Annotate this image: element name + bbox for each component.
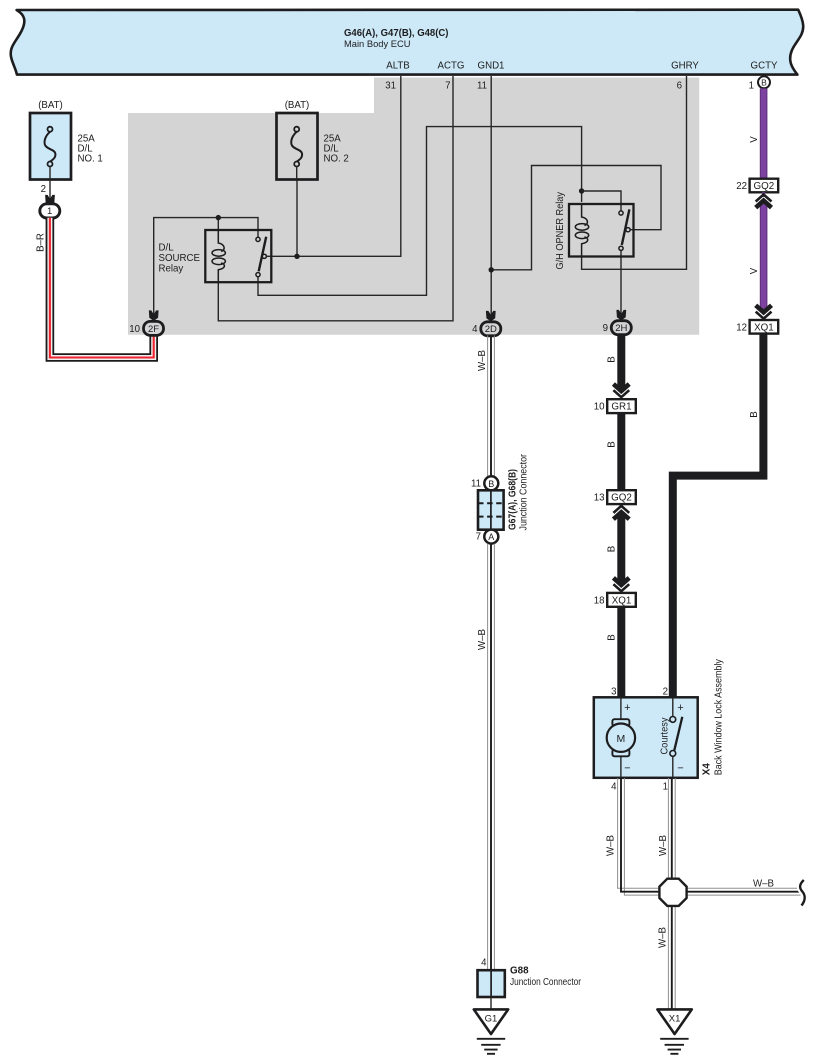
svg-text:B: B: [607, 441, 618, 447]
svg-text:D/L: D/L: [159, 243, 175, 254]
svg-text:X4: X4: [702, 763, 713, 776]
svg-text:GND1: GND1: [478, 61, 505, 72]
svg-text:G46(A), G47(B), G48(C): G46(A), G47(B), G48(C): [344, 28, 449, 39]
svg-text:22: 22: [736, 181, 747, 192]
svg-text:Junction Connector: Junction Connector: [510, 977, 582, 988]
svg-text:B: B: [749, 411, 760, 417]
svg-text:W–B: W–B: [753, 879, 774, 890]
svg-text:M: M: [617, 733, 626, 745]
svg-text:1: 1: [749, 81, 754, 92]
svg-text:+: +: [624, 702, 630, 714]
svg-text:2D: 2D: [485, 324, 497, 335]
svg-text:W–B: W–B: [606, 835, 617, 856]
svg-text:NO. 1: NO. 1: [78, 154, 103, 165]
svg-text:Courtesy: Courtesy: [660, 717, 671, 754]
svg-text:9: 9: [603, 323, 608, 334]
svg-text:11: 11: [477, 81, 487, 92]
svg-text:10: 10: [594, 402, 605, 413]
svg-text:GQ2: GQ2: [611, 493, 632, 504]
svg-text:GCTY: GCTY: [751, 61, 778, 72]
svg-text:Relay: Relay: [159, 264, 184, 275]
svg-text:−: −: [624, 763, 630, 775]
svg-text:G1: G1: [485, 1014, 498, 1025]
svg-text:18: 18: [594, 595, 605, 606]
svg-text:GQ2: GQ2: [754, 181, 775, 192]
svg-text:X1: X1: [669, 1014, 681, 1025]
svg-text:7: 7: [445, 81, 450, 92]
svg-text:11: 11: [471, 479, 481, 490]
svg-text:GHRY: GHRY: [671, 61, 699, 72]
svg-text:2H: 2H: [615, 323, 627, 334]
svg-text:12: 12: [736, 322, 747, 333]
svg-text:V: V: [749, 136, 760, 143]
svg-text:W–B: W–B: [658, 927, 669, 948]
svg-text:Back Window Lock Assembly: Back Window Lock Assembly: [714, 659, 725, 775]
svg-text:2: 2: [663, 687, 668, 698]
svg-text:V: V: [749, 267, 760, 274]
svg-text:2: 2: [41, 184, 46, 195]
svg-text:W–B: W–B: [477, 350, 488, 371]
svg-text:W–B: W–B: [477, 629, 488, 650]
svg-text:2F: 2F: [148, 324, 159, 335]
svg-text:1: 1: [663, 782, 668, 793]
svg-text:4: 4: [481, 958, 487, 969]
svg-text:4: 4: [611, 782, 617, 793]
svg-text:Main Body ECU: Main Body ECU: [344, 39, 411, 50]
svg-text:31: 31: [385, 81, 396, 92]
svg-text:G67(A), G68(B): G67(A), G68(B): [508, 469, 519, 530]
svg-text:B: B: [607, 356, 618, 362]
svg-text:1: 1: [47, 206, 52, 217]
svg-text:+: +: [677, 702, 683, 714]
svg-text:(BAT): (BAT): [285, 100, 310, 111]
svg-text:6: 6: [677, 81, 682, 92]
svg-text:B: B: [488, 479, 494, 489]
svg-text:SOURCE: SOURCE: [159, 253, 201, 264]
svg-text:W–B: W–B: [658, 835, 669, 856]
svg-text:10: 10: [129, 324, 140, 335]
svg-text:B: B: [761, 78, 767, 88]
svg-text:4: 4: [472, 324, 478, 335]
svg-text:ACTG: ACTG: [438, 61, 465, 72]
svg-text:7: 7: [476, 532, 481, 543]
svg-text:G88: G88: [510, 966, 529, 977]
svg-text:G/H OPNER Relay: G/H OPNER Relay: [555, 192, 566, 270]
svg-text:NO. 2: NO. 2: [324, 154, 349, 165]
svg-text:Junction Connector: Junction Connector: [519, 453, 530, 530]
svg-text:A: A: [488, 532, 494, 542]
svg-text:−: −: [677, 763, 683, 775]
svg-text:XQ1: XQ1: [612, 595, 632, 606]
svg-text:B: B: [607, 546, 618, 552]
svg-text:(BAT): (BAT): [38, 100, 63, 111]
svg-text:ALTB: ALTB: [386, 61, 410, 72]
svg-text:13: 13: [594, 493, 605, 504]
svg-text:B–R: B–R: [36, 233, 47, 252]
svg-text:GR1: GR1: [611, 402, 631, 413]
svg-text:XQ1: XQ1: [754, 322, 774, 333]
svg-text:3: 3: [611, 687, 616, 698]
svg-text:B: B: [607, 634, 618, 640]
